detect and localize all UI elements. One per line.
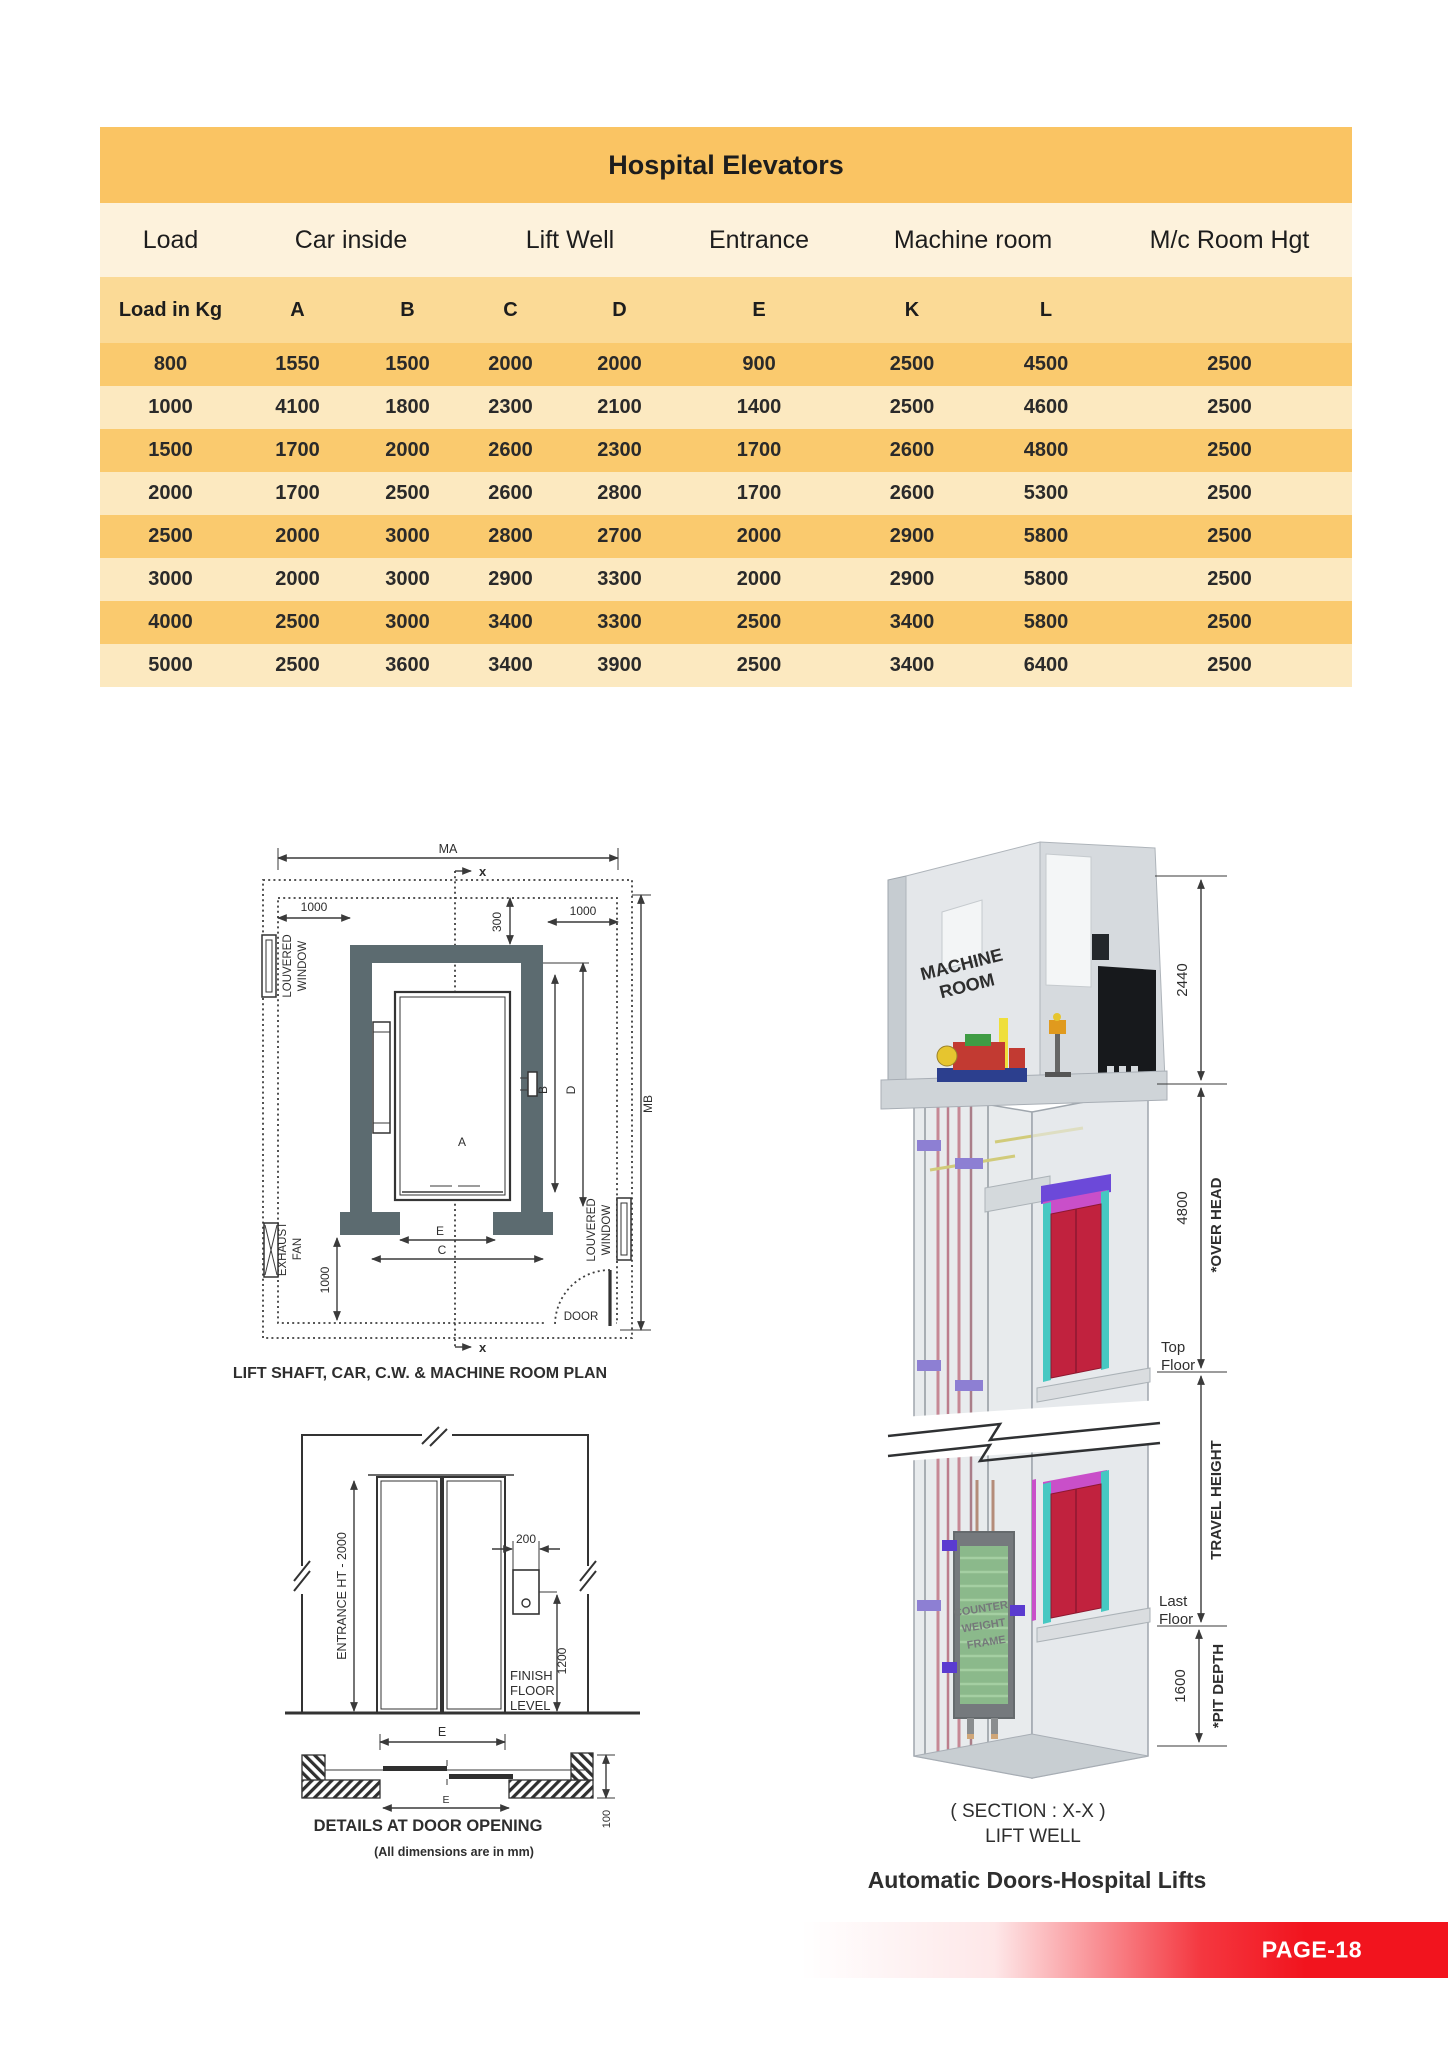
finish-floor-label3: LEVEL — [510, 1698, 550, 1713]
table-cell: 1000 — [100, 386, 241, 429]
table-cell: 2500 — [679, 644, 839, 687]
shaft-wall-top — [350, 945, 543, 963]
table-cell: 2000 — [354, 429, 461, 472]
catalog-page: Hospital Elevators Load Car inside Lift … — [0, 0, 1448, 2048]
table-cell: 2500 — [354, 472, 461, 515]
group-header-entrance: Entrance — [679, 203, 839, 277]
table-cell: 1700 — [241, 472, 354, 515]
exhaust-fan-label: EXHAUST — [277, 1222, 289, 1276]
door-detail-diagram: ENTRANCE HT - 2000 200 1200 FINISH FLOOR… — [200, 1425, 660, 1870]
dim-2440: 2440 — [1174, 963, 1191, 996]
louvered-window-left-icon — [262, 935, 276, 997]
table-cell: 2300 — [461, 386, 560, 429]
col-header: D — [560, 277, 679, 343]
group-header-lift-well: Lift Well — [461, 203, 679, 277]
controller-cabinet — [1098, 966, 1156, 1080]
table-cell: 3400 — [461, 601, 560, 644]
shaft-wall-foot-right — [493, 1212, 553, 1235]
last-floor-label: Last — [1159, 1593, 1188, 1610]
table-cell: 2000 — [241, 558, 354, 601]
pit-depth-label: *PIT DEPTH — [1210, 1644, 1227, 1728]
shaft-wall-foot-left — [340, 1212, 400, 1235]
finish-floor-label: FINISH — [510, 1668, 553, 1683]
machine-room-3d: MACHINE ROOM — [881, 842, 1167, 1109]
table-title: Hospital Elevators — [100, 127, 1352, 203]
dim-b: B — [536, 1086, 550, 1094]
shaft-wall-left — [350, 945, 372, 1212]
col-header — [1107, 277, 1352, 343]
table-cell: 3400 — [839, 644, 985, 687]
table-cell: 2600 — [461, 429, 560, 472]
table-cell: 2900 — [461, 558, 560, 601]
group-header-car-inside: Car inside — [241, 203, 461, 277]
col-header: B — [354, 277, 461, 343]
louvered-window-right-label: LOUVERED — [586, 1198, 598, 1261]
table-row: 400025003000340033002500340058002500 — [100, 601, 1352, 644]
dim-1600: 1600 — [1172, 1669, 1189, 1702]
table-cell: 2000 — [560, 343, 679, 386]
dimensions-note: (All dimensions are in mm) — [374, 1845, 534, 1859]
col-header: Load in Kg — [100, 277, 241, 343]
table-row: 150017002000260023001700260048002500 — [100, 429, 1352, 472]
table-row: 8001550150020002000900250045002500 — [100, 343, 1352, 386]
spec-table-body: 8001550150020002000900250045002500100041… — [100, 343, 1352, 687]
page-number: PAGE-18 — [1262, 1937, 1362, 1964]
spec-grid: Load Car inside Lift Well Entrance Machi… — [100, 203, 1352, 687]
table-cell: 1700 — [679, 429, 839, 472]
table-cell: 1800 — [354, 386, 461, 429]
table-cell: 1550 — [241, 343, 354, 386]
table-group-header-row: Load Car inside Lift Well Entrance Machi… — [100, 203, 1352, 277]
dim-1000-left: 1000 — [301, 900, 328, 914]
table-cell: 4800 — [985, 429, 1107, 472]
door-panel-left — [377, 1477, 441, 1713]
group-header-machine-room: Machine room — [839, 203, 1107, 277]
dim-1000-bottom: 1000 — [318, 1266, 332, 1293]
governor — [1045, 1072, 1071, 1077]
table-cell: 800 — [100, 343, 241, 386]
table-cell: 3400 — [461, 644, 560, 687]
counterweight-plan — [373, 1022, 390, 1133]
group-header-load: Load — [100, 203, 241, 277]
table-cell: 2500 — [839, 343, 985, 386]
door-leaf-b — [449, 1774, 513, 1779]
lift-shaft-plan-diagram: MA x 1000 300 1000 B — [190, 840, 670, 1395]
table-cell: 4100 — [241, 386, 354, 429]
table-subheader-row: Load in Kg A B C D E K L — [100, 277, 1352, 343]
table-cell: 3600 — [354, 644, 461, 687]
table-cell: 2500 — [679, 601, 839, 644]
lift-well-caption: LIFT WELL — [985, 1826, 1081, 1847]
table-cell: 2500 — [1107, 515, 1352, 558]
table-cell: 5300 — [985, 472, 1107, 515]
section-caption: ( SECTION : X-X ) — [950, 1801, 1105, 1822]
door-panel-right — [443, 1477, 505, 1713]
table-cell: 5800 — [985, 601, 1107, 644]
table-row: 200017002500260028001700260053002500 — [100, 472, 1352, 515]
table-cell: 2500 — [1107, 644, 1352, 687]
table-cell: 900 — [679, 343, 839, 386]
table-cell: 3900 — [560, 644, 679, 687]
table-cell: 5000 — [100, 644, 241, 687]
table-row: 100041001800230021001400250046002500 — [100, 386, 1352, 429]
dim-1200: 1200 — [555, 1647, 569, 1674]
section-marker-bottom: x — [479, 1340, 487, 1355]
figure-title: Automatic Doors-Hospital Lifts — [868, 1867, 1207, 1893]
exhaust-fan-label2: FAN — [292, 1238, 304, 1260]
table-cell: 2500 — [839, 386, 985, 429]
table-cell: 1500 — [100, 429, 241, 472]
table-cell: 5800 — [985, 515, 1107, 558]
table-cell: 1700 — [241, 429, 354, 472]
table-cell: 1400 — [679, 386, 839, 429]
travel-height-label: TRAVEL HEIGHT — [1208, 1440, 1225, 1559]
table-cell: 2500 — [1107, 386, 1352, 429]
table-cell: 2500 — [1107, 472, 1352, 515]
table-cell: 2000 — [241, 515, 354, 558]
table-cell: 2900 — [839, 558, 985, 601]
dim-e-plan: E — [442, 1794, 449, 1806]
table-cell: 2700 — [560, 515, 679, 558]
table-cell: 2800 — [461, 515, 560, 558]
dim-e-elevation: E — [438, 1725, 446, 1739]
wall-left-plan — [302, 1780, 380, 1798]
table-cell: 2800 — [560, 472, 679, 515]
jamb-right — [571, 1753, 593, 1780]
table-cell: 3000 — [354, 558, 461, 601]
table-cell: 4600 — [985, 386, 1107, 429]
dim-a: A — [458, 1135, 466, 1149]
dim-mb: MB — [641, 1095, 655, 1113]
louvered-window-left-label2: WINDOW — [297, 941, 309, 992]
table-cell: 2000 — [679, 515, 839, 558]
footer-ribbon: PAGE-18 — [800, 1922, 1448, 1978]
door-label: DOOR — [564, 1311, 599, 1323]
louvered-window-left-label: LOUVERED — [282, 934, 294, 997]
table-cell: 2500 — [1107, 343, 1352, 386]
table-cell: 2600 — [839, 472, 985, 515]
last-floor-label2: Floor — [1159, 1611, 1193, 1628]
traction-machine — [953, 1042, 1005, 1070]
spec-table: Hospital Elevators Load Car inside Lift … — [100, 127, 1352, 687]
table-cell: 1500 — [354, 343, 461, 386]
table-cell: 4500 — [985, 343, 1107, 386]
col-header: K — [839, 277, 985, 343]
col-header: C — [461, 277, 560, 343]
machine-base — [937, 1068, 1027, 1082]
table-cell: 3400 — [839, 601, 985, 644]
table-cell: 3000 — [354, 601, 461, 644]
section-dimensions: 2440 4800 *OVER HEAD Top Floor TRAVEL HE… — [1155, 876, 1227, 1746]
table-cell: 2900 — [839, 515, 985, 558]
lift-well-section-diagram: COUNTER WEIGHT FRAME — [655, 840, 1295, 1905]
table-cell: 2500 — [1107, 429, 1352, 472]
table-row: 300020003000290033002000290058002500 — [100, 558, 1352, 601]
louvered-window-right-icon — [617, 1198, 631, 1260]
dim-4800: 4800 — [1174, 1191, 1191, 1224]
louvered-window-right-label2: WINDOW — [601, 1205, 613, 1256]
table-cell: 2500 — [1107, 601, 1352, 644]
col-header: A — [241, 277, 354, 343]
wall-right-plan — [509, 1780, 593, 1798]
table-cell: 3000 — [100, 558, 241, 601]
table-cell: 2600 — [461, 472, 560, 515]
door-leaf-a — [383, 1766, 447, 1771]
col-header: E — [679, 277, 839, 343]
table-cell: 3300 — [560, 558, 679, 601]
plan-caption: LIFT SHAFT, CAR, C.W. & MACHINE ROOM PLA… — [233, 1365, 607, 1382]
table-row: 500025003600340039002500340064002500 — [100, 644, 1352, 687]
door-detail-caption: DETAILS AT DOOR OPENING — [314, 1817, 543, 1835]
table-cell: 2000 — [679, 558, 839, 601]
table-cell: 2000 — [461, 343, 560, 386]
table-cell: 2500 — [241, 601, 354, 644]
table-cell: 1700 — [679, 472, 839, 515]
top-floor-label: Top — [1161, 1339, 1185, 1356]
table-cell: 2500 — [241, 644, 354, 687]
table-cell: 2000 — [100, 472, 241, 515]
table-cell: 3300 — [560, 601, 679, 644]
dim-1000-right: 1000 — [570, 904, 597, 918]
finish-floor-label2: FLOOR — [510, 1683, 555, 1698]
dim-ma-label: MA — [439, 842, 458, 856]
dim-200: 200 — [516, 1532, 536, 1546]
dim-c: C — [438, 1243, 447, 1257]
lift-car-outline — [395, 992, 510, 1200]
table-cell: 2300 — [560, 429, 679, 472]
table-cell: 3000 — [354, 515, 461, 558]
table-cell: 2500 — [100, 515, 241, 558]
over-head-label: *OVER HEAD — [1208, 1177, 1225, 1272]
dim-300: 300 — [490, 912, 504, 932]
dim-e: E — [436, 1224, 444, 1238]
section-marker-top: x — [479, 864, 487, 879]
table-cell: 2100 — [560, 386, 679, 429]
table-cell: 6400 — [985, 644, 1107, 687]
dim-100: 100 — [601, 1810, 613, 1828]
entrance-height-label: ENTRANCE HT - 2000 — [335, 1532, 349, 1660]
table-row: 250020003000280027002000290058002500 — [100, 515, 1352, 558]
table-cell: 2600 — [839, 429, 985, 472]
group-header-mc-room-hgt: M/c Room Hgt — [1107, 203, 1352, 277]
table-cell: 5800 — [985, 558, 1107, 601]
dim-d: D — [564, 1085, 578, 1094]
col-header: L — [985, 277, 1107, 343]
table-cell: 4000 — [100, 601, 241, 644]
table-cell: 2500 — [1107, 558, 1352, 601]
top-floor-label2: Floor — [1161, 1357, 1195, 1374]
